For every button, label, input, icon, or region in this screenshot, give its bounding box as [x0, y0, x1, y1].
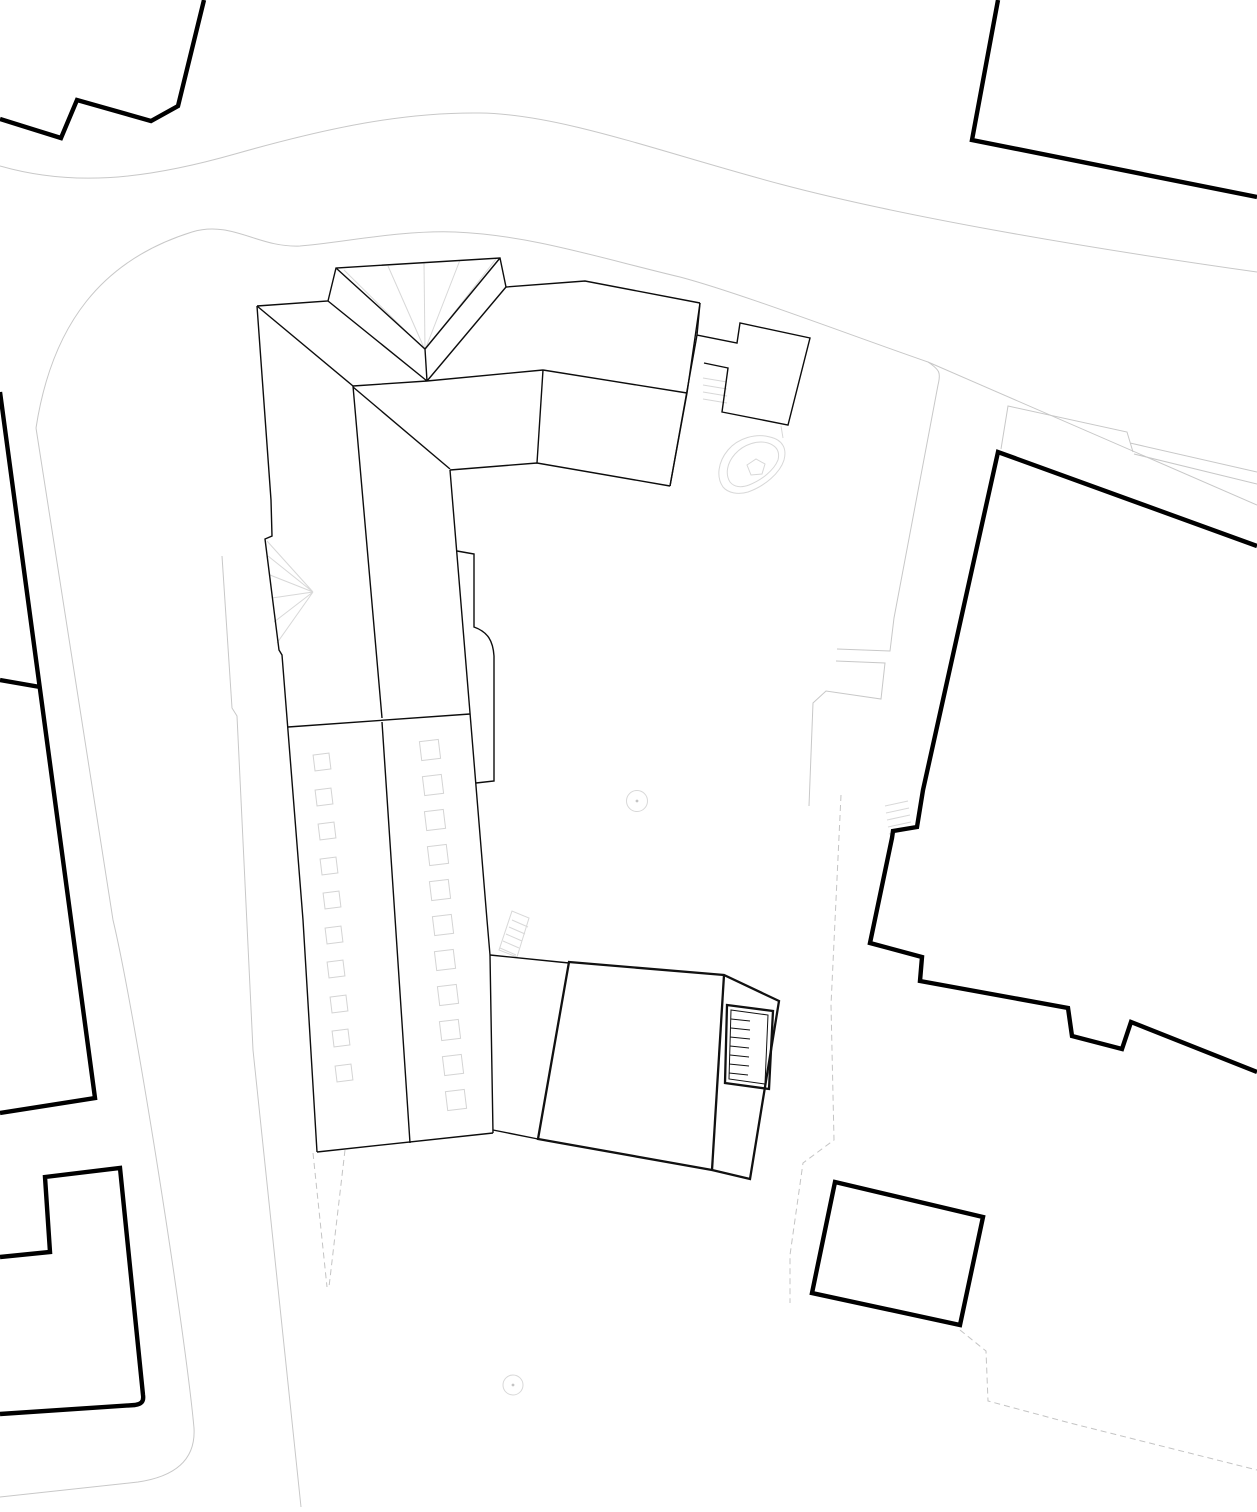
- terrace-strip-east: [457, 551, 494, 783]
- skylight: [335, 1064, 353, 1082]
- head-bay-valleys: [328, 258, 506, 386]
- planter-stem: [781, 426, 783, 438]
- building-south-small: [812, 1182, 983, 1325]
- wing-hip-northwest: [257, 306, 353, 386]
- wing-east-facade: [450, 470, 493, 1133]
- skylight: [439, 1019, 460, 1040]
- dashed-wedge-southwest: [313, 1150, 345, 1287]
- building-east-large: [870, 452, 1257, 1072]
- dashed-boundary-southeast: [960, 1330, 1257, 1470]
- skylight: [320, 857, 338, 875]
- skylight: [330, 995, 348, 1013]
- head-east-eave: [670, 335, 697, 486]
- skylight: [434, 949, 455, 970]
- skylight: [437, 984, 458, 1005]
- road-north-edge: [0, 113, 1257, 272]
- head-hip-west: [427, 370, 543, 463]
- dashed-boundary-court: [790, 795, 841, 1303]
- skylight: [327, 960, 345, 978]
- skylight: [332, 1029, 350, 1047]
- street-curb-east: [928, 362, 1257, 505]
- layer-roads-and-paths: [0, 113, 1257, 1507]
- skylight: [429, 879, 450, 900]
- pavement-band-right: [1001, 406, 1257, 484]
- layer-skylights: [313, 739, 467, 1110]
- courtyard-wall-east: [837, 362, 939, 651]
- skylight: [422, 774, 443, 795]
- layer-pavilion-stair-detail: [729, 1010, 768, 1084]
- tree-dot-court: [636, 800, 639, 803]
- planter-pentagon: [747, 459, 765, 475]
- terrace-steps-court: [809, 661, 885, 806]
- layer-tree-symbols: [503, 791, 648, 1396]
- skylight: [427, 844, 448, 865]
- path-left-outer: [0, 428, 194, 1497]
- wing-hip-courtyard: [353, 387, 450, 469]
- head-south-eave: [450, 463, 670, 486]
- path-left-inner: [222, 556, 301, 1507]
- layer-pavilion-building: [538, 962, 779, 1179]
- building-southwest-lower: [0, 1168, 143, 1414]
- bay-roof-fan-west: [267, 541, 313, 643]
- skylight: [325, 926, 343, 944]
- link-south-edge: [493, 1130, 538, 1139]
- planter-leaf-inner: [727, 442, 778, 487]
- layer-site-details: [267, 259, 912, 957]
- layer-context-buildings: [0, 0, 1257, 1414]
- skylight: [445, 1089, 466, 1110]
- skylight: [315, 788, 333, 806]
- skylight: [442, 1054, 463, 1075]
- skylight: [318, 822, 336, 840]
- skylight: [432, 914, 453, 935]
- building-northwest-fragment: [0, 0, 204, 138]
- head-ridge: [543, 370, 687, 393]
- skylight: [424, 809, 445, 830]
- skylight: [323, 891, 341, 909]
- wing-south-edge: [317, 1133, 493, 1152]
- site-plan: [0, 0, 1257, 1512]
- building-northeast: [972, 0, 1257, 197]
- pavilion-stair-treads: [729, 1019, 750, 1075]
- stair-hatch-wing: [499, 911, 529, 957]
- pavilion-outline: [538, 962, 779, 1179]
- wing-transverse-line: [288, 714, 470, 727]
- wing-west-edge: [257, 306, 317, 1152]
- skylight: [313, 753, 331, 771]
- pavilion-division: [712, 975, 724, 1170]
- annex-outline: [697, 303, 810, 425]
- bay-roof-fan-north: [344, 259, 496, 350]
- wing-ridge: [353, 386, 410, 1143]
- link-north-edge: [490, 955, 569, 963]
- site-plan-canvas: [0, 0, 1257, 1512]
- layer-property-dashed: [313, 795, 1257, 1470]
- skylight: [419, 739, 440, 760]
- tree-dot-south: [512, 1384, 515, 1387]
